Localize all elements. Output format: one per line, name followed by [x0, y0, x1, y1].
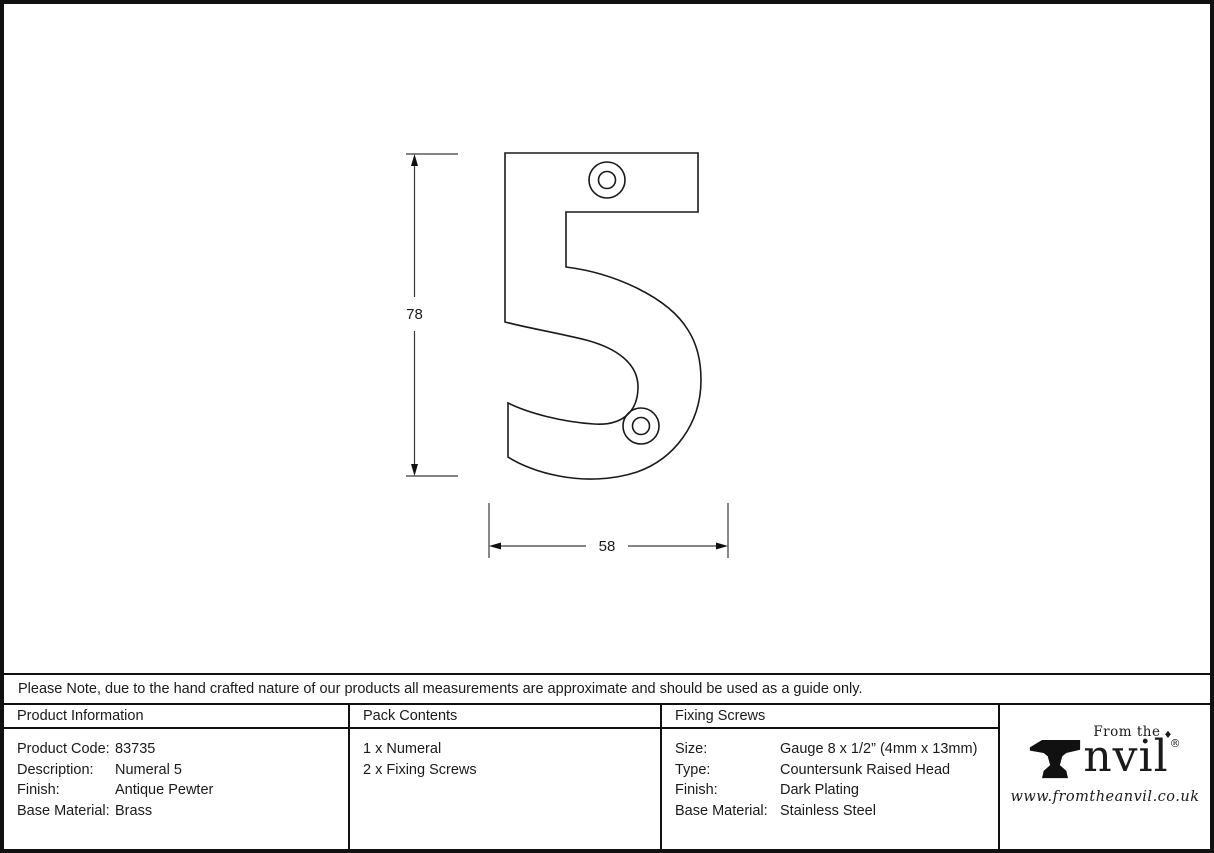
- screw-base-material-value: Stainless Steel: [780, 801, 876, 822]
- spec-table: Product Information Product Code: 83735 …: [4, 705, 1210, 849]
- table-row: Base Material: Stainless Steel: [675, 801, 998, 822]
- product-code-value: 83735: [115, 739, 155, 760]
- table-row: Size: Gauge 8 x 1/2” (4mm x 13mm): [675, 739, 998, 760]
- screw-hole-top-inner: [599, 172, 616, 189]
- screw-type-value: Countersunk Raised Head: [780, 760, 950, 781]
- fixing-screws-body: Size: Gauge 8 x 1/2” (4mm x 13mm) Type: …: [662, 729, 998, 821]
- pack-contents-header: Pack Contents: [350, 705, 660, 729]
- height-dim-label: 78: [406, 306, 423, 323]
- description-label: Description:: [17, 760, 115, 781]
- table-row: Type: Countersunk Raised Head: [675, 760, 998, 781]
- product-information-body: Product Code: 83735 Description: Numeral…: [4, 729, 348, 821]
- screw-hole-top-outer: [589, 162, 625, 198]
- pack-item-numeral: 1 x Numeral: [363, 739, 660, 760]
- anvil-icon: [1029, 736, 1081, 783]
- screw-hole-bottom-outer: [623, 408, 659, 444]
- table-row: Description: Numeral 5: [17, 760, 348, 781]
- arrow-down-icon: [411, 464, 418, 476]
- table-row: Finish: Dark Plating: [675, 780, 998, 801]
- product-information-column: Product Information Product Code: 83735 …: [4, 705, 350, 849]
- logo-main-row: From the♦ nvil®: [1029, 726, 1180, 785]
- screw-type-label: Type:: [675, 760, 780, 781]
- base-material-value: Brass: [115, 801, 152, 822]
- table-row: Finish: Antique Pewter: [17, 780, 348, 801]
- width-dim-label: 58: [599, 538, 616, 555]
- screw-finish-value: Dark Plating: [780, 780, 859, 801]
- pack-item-screws: 2 x Fixing Screws: [363, 760, 660, 781]
- screw-size-label: Size:: [675, 739, 780, 760]
- anvil-wordmark: nvil®: [1083, 740, 1180, 785]
- spec-sheet-page: 78 58 Please Note, due to the hand craft…: [0, 0, 1214, 853]
- description-value: Numeral 5: [115, 760, 182, 781]
- pack-contents-column: Pack Contents 1 x Numeral 2 x Fixing Scr…: [350, 705, 662, 849]
- fixing-screws-header: Fixing Screws: [662, 705, 998, 729]
- screw-finish-label: Finish:: [675, 780, 780, 801]
- arrow-right-icon: [716, 543, 728, 550]
- technical-drawing: 78 58: [0, 0, 1214, 673]
- arrow-up-icon: [411, 154, 418, 166]
- base-material-label: Base Material:: [17, 801, 115, 822]
- fixing-screws-column: Fixing Screws Size: Gauge 8 x 1/2” (4mm …: [662, 705, 1000, 849]
- arrow-left-icon: [489, 543, 501, 550]
- table-row: Base Material: Brass: [17, 801, 348, 822]
- note-bar: Please Note, due to the hand crafted nat…: [4, 673, 1210, 705]
- anvil-letters: nvil: [1083, 731, 1168, 782]
- pack-contents-body: 1 x Numeral 2 x Fixing Screws: [350, 729, 660, 780]
- logo-website-url: www.fromtheanvil.co.uk: [1010, 789, 1199, 805]
- logo-wordmark: From the♦ nvil®: [1083, 726, 1180, 785]
- table-row: Product Code: 83735: [17, 739, 348, 760]
- product-code-label: Product Code:: [17, 739, 115, 760]
- product-information-header: Product Information: [4, 705, 348, 729]
- screw-size-value: Gauge 8 x 1/2” (4mm x 13mm): [780, 739, 977, 760]
- from-the-anvil-logo: From the♦ nvil® www.fromtheanvil.co.uk: [1010, 726, 1199, 805]
- note-text: Please Note, due to the hand crafted nat…: [18, 681, 862, 697]
- brand-cell: From the♦ nvil® www.fromtheanvil.co.uk: [1000, 705, 1210, 849]
- finish-value: Antique Pewter: [115, 780, 213, 801]
- registered-trademark-icon: ®: [1170, 737, 1182, 750]
- finish-label: Finish:: [17, 780, 115, 801]
- screw-hole-bottom-inner: [633, 418, 650, 435]
- screw-base-material-label: Base Material:: [675, 801, 780, 822]
- numeral-5-outline: [505, 153, 701, 479]
